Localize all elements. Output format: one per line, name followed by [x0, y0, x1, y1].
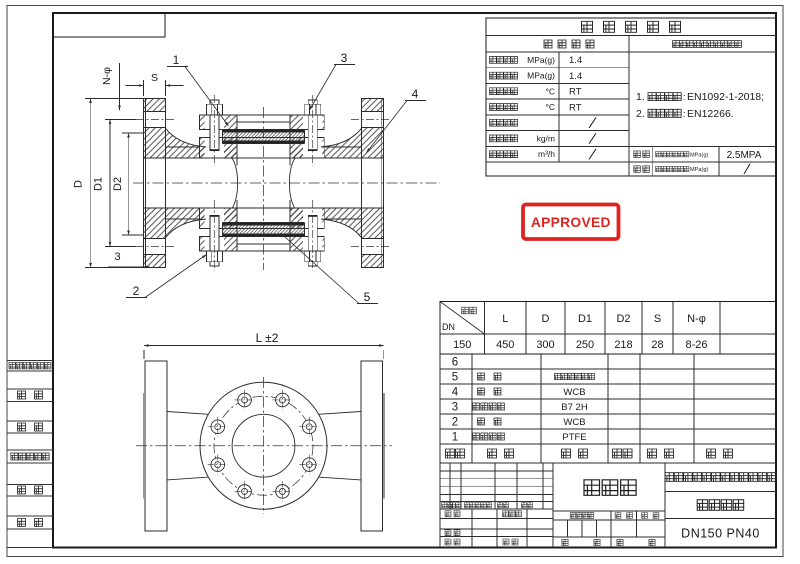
svg-text:150: 150 [453, 339, 471, 351]
svg-text:D: D [542, 313, 550, 325]
svg-text:2: 2 [133, 284, 140, 298]
svg-text:8-26: 8-26 [685, 339, 707, 351]
svg-text:WCB: WCB [563, 417, 585, 428]
svg-text:S: S [151, 72, 158, 84]
svg-text:°C: °C [545, 86, 555, 96]
svg-text:D2: D2 [112, 177, 124, 191]
svg-text:1: 1 [173, 53, 180, 67]
svg-text:L: L [502, 313, 508, 325]
svg-text:N-φ: N-φ [101, 67, 113, 85]
svg-text:1.4: 1.4 [569, 55, 582, 66]
svg-text:1.4: 1.4 [569, 71, 582, 82]
svg-text:MPa(g): MPa(g) [690, 152, 708, 158]
svg-text:5: 5 [452, 372, 458, 384]
svg-text:N-φ: N-φ [687, 313, 706, 325]
svg-text:4: 4 [412, 87, 419, 101]
svg-text:D2: D2 [616, 313, 630, 325]
svg-text::: : [683, 109, 686, 119]
svg-text:kg/m: kg/m [537, 133, 555, 143]
svg-text:MPa(g): MPa(g) [690, 167, 708, 173]
svg-text:D1: D1 [93, 177, 105, 191]
svg-text:°C: °C [545, 102, 555, 112]
svg-text:B7 2H: B7 2H [561, 402, 588, 413]
svg-text:250: 250 [576, 339, 594, 351]
svg-text:5: 5 [364, 290, 371, 304]
svg-text:RT: RT [569, 87, 582, 98]
svg-text:EN1092-1-2018;: EN1092-1-2018; [687, 91, 764, 103]
svg-text:6: 6 [452, 357, 458, 369]
svg-text:D: D [73, 180, 85, 188]
svg-text:2.: 2. [636, 108, 645, 120]
svg-text:2.5MPA: 2.5MPA [727, 150, 762, 161]
svg-text:28: 28 [651, 339, 663, 351]
svg-text:1: 1 [452, 432, 458, 444]
svg-text:PTFE: PTFE [562, 432, 586, 443]
svg-text:DN: DN [442, 322, 455, 332]
svg-text:D1: D1 [578, 313, 592, 325]
svg-text:3: 3 [341, 51, 348, 65]
svg-text:300: 300 [536, 339, 554, 351]
svg-text:MPa(g): MPa(g) [527, 71, 555, 81]
svg-text:m³/h: m³/h [538, 149, 555, 159]
svg-text:S: S [654, 313, 661, 325]
svg-text:EN12266.: EN12266. [687, 108, 734, 120]
svg-text:DN150 PN40: DN150 PN40 [681, 527, 760, 541]
svg-text::: : [683, 92, 686, 102]
svg-text:4: 4 [452, 387, 459, 399]
svg-text:WCB: WCB [563, 387, 585, 398]
svg-text:3: 3 [114, 251, 120, 263]
svg-text:2: 2 [452, 417, 458, 429]
svg-text:450: 450 [496, 339, 514, 351]
svg-text:MPa(g): MPa(g) [527, 55, 555, 65]
svg-text:RT: RT [569, 102, 582, 113]
svg-text:APPROVED: APPROVED [531, 215, 611, 230]
svg-text:1.: 1. [636, 91, 645, 103]
svg-text:3: 3 [452, 402, 458, 414]
svg-text:L ±2: L ±2 [256, 331, 279, 345]
svg-text:218: 218 [614, 339, 632, 351]
